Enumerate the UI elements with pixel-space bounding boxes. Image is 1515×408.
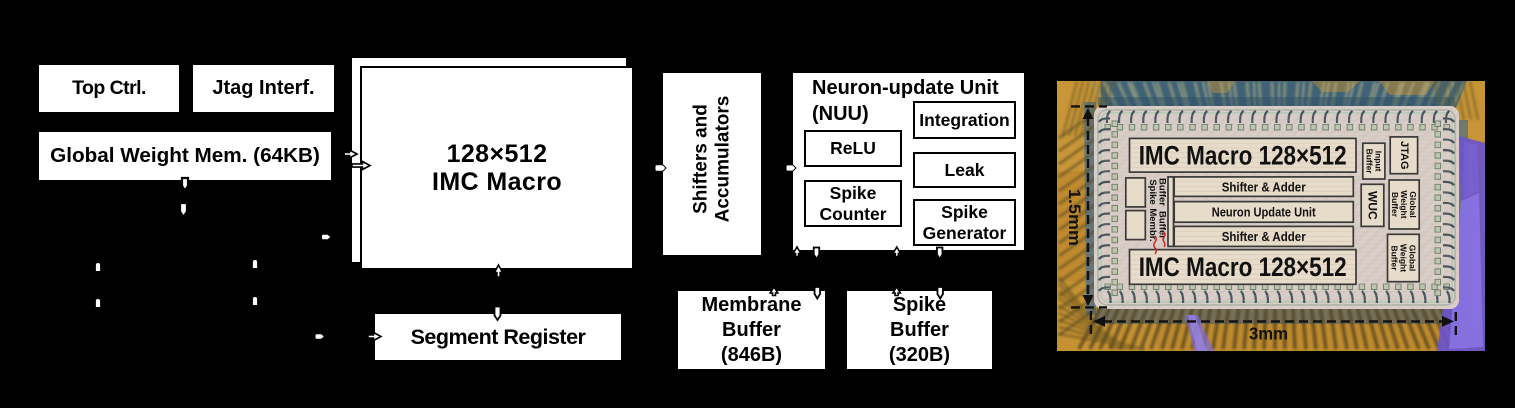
svg-text:IMC Macro 128×512: IMC Macro 128×512: [1139, 141, 1347, 171]
svg-text:Neuron Update Unit: Neuron Update Unit: [1212, 205, 1317, 220]
svg-text:Buffer: Buffer: [1389, 245, 1399, 271]
svg-text:Membr.: Membr.: [1147, 208, 1158, 241]
svg-text:1.5mm: 1.5mm: [1065, 189, 1084, 246]
svg-text:IMC Macro 128×512: IMC Macro 128×512: [1139, 252, 1347, 282]
svg-text:WUC: WUC: [1366, 191, 1380, 220]
svg-text:Buffer: Buffer: [1157, 211, 1168, 239]
svg-text:Buffer: Buffer: [1157, 178, 1168, 206]
svg-text:Spike: Spike: [1147, 179, 1158, 204]
svg-text:3mm: 3mm: [1249, 324, 1288, 344]
svg-text:Shifter & Adder: Shifter & Adder: [1222, 229, 1306, 244]
svg-text:JTAG: JTAG: [1398, 141, 1410, 170]
svg-text:Buffer: Buffer: [1390, 192, 1400, 218]
svg-text:Buffer: Buffer: [1364, 149, 1374, 175]
svg-text:Shifter & Adder: Shifter & Adder: [1222, 179, 1306, 194]
